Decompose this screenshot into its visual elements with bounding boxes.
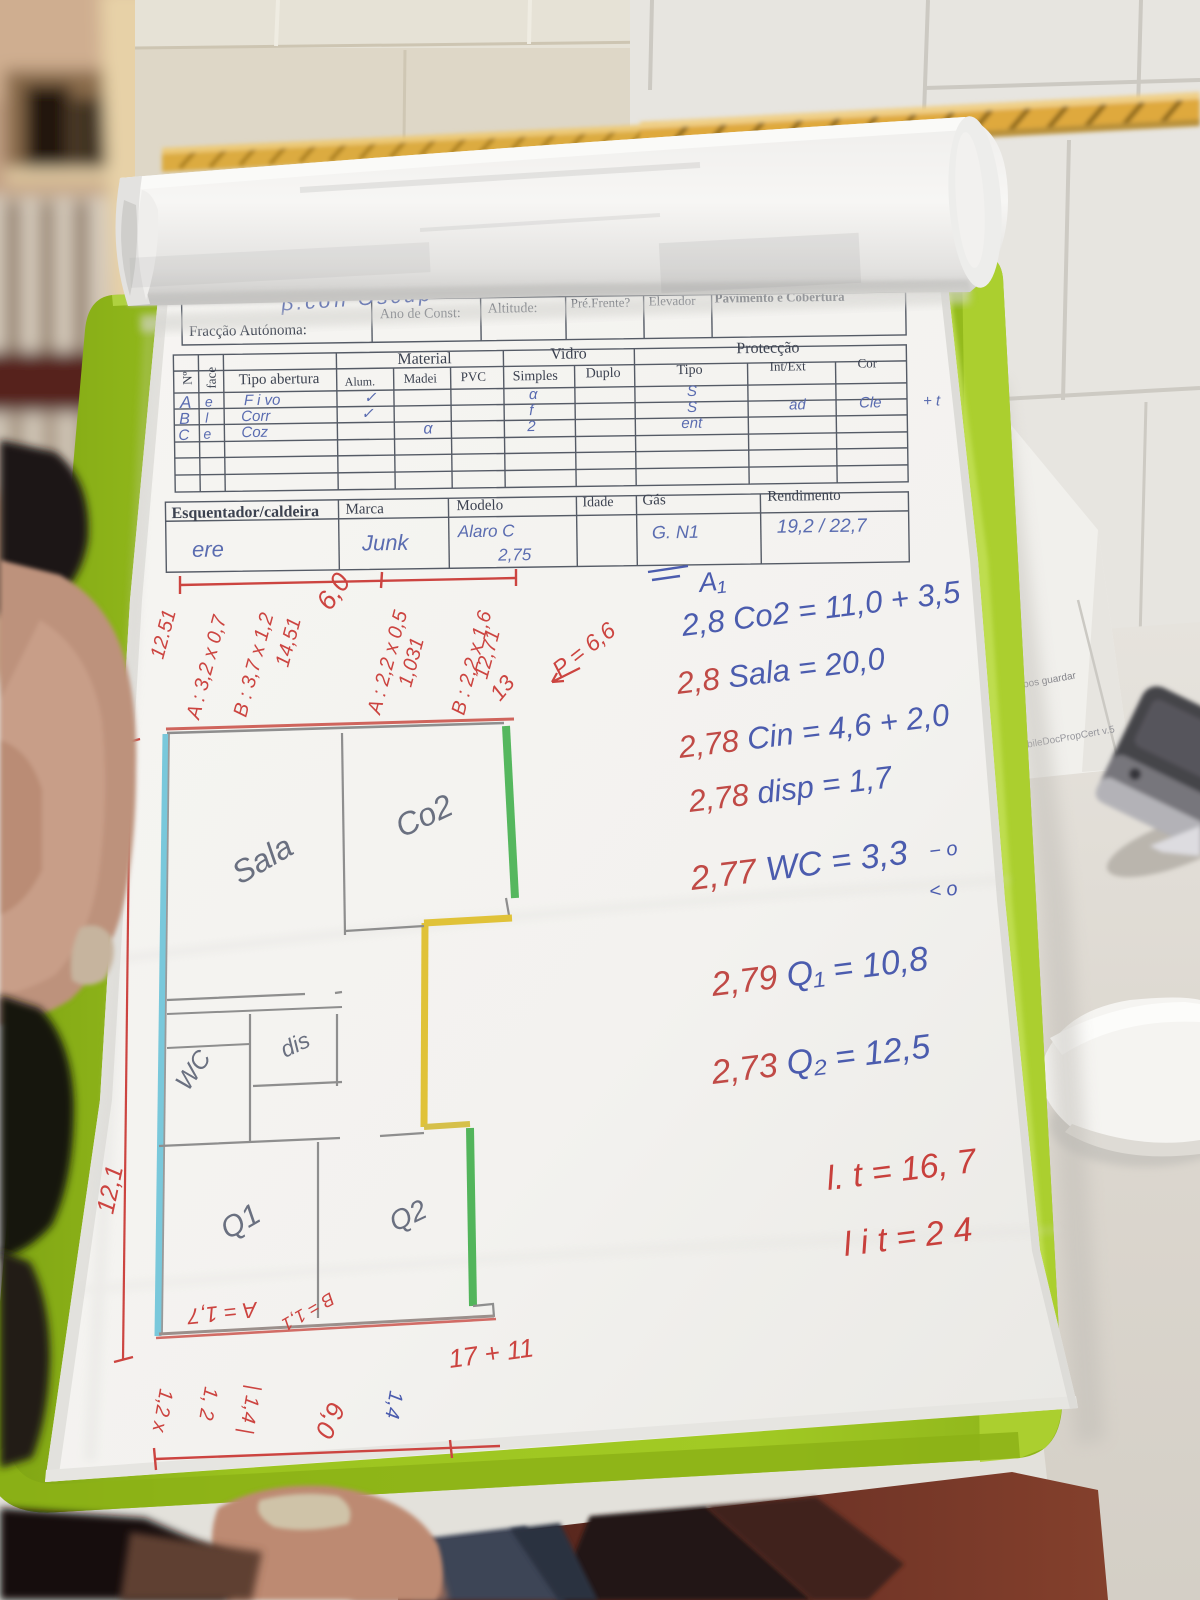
svg-text:A: A xyxy=(179,393,192,412)
svg-text:Alaro C: Alaro C xyxy=(457,521,516,541)
svg-text:Cle: Cle xyxy=(859,394,882,411)
svg-text:PVC: PVC xyxy=(461,369,487,384)
svg-text:Duplo: Duplo xyxy=(586,366,621,381)
svg-text:Int/Ext: Int/Ext xyxy=(769,358,806,374)
svg-text:ent: ent xyxy=(681,415,703,432)
svg-text:Esquentador/caldeira: Esquentador/caldeira xyxy=(171,503,319,522)
svg-text:Tipo: Tipo xyxy=(676,363,702,378)
svg-text:α: α xyxy=(529,386,538,403)
svg-text:Rendimento: Rendimento xyxy=(767,488,841,505)
svg-text:Coz: Coz xyxy=(241,424,268,441)
svg-text:✓: ✓ xyxy=(361,405,374,422)
svg-text:α: α xyxy=(423,420,433,437)
svg-text:G. N1: G. N1 xyxy=(652,522,699,543)
svg-text:Nº: Nº xyxy=(180,371,195,385)
svg-text:2: 2 xyxy=(526,418,536,435)
svg-text:S: S xyxy=(687,383,697,400)
svg-text:+ t: + t xyxy=(923,392,941,409)
svg-text:Idade: Idade xyxy=(582,495,613,510)
svg-text:ad: ad xyxy=(789,396,807,413)
svg-text:B: B xyxy=(179,411,190,428)
svg-text:Modelo: Modelo xyxy=(456,498,503,515)
svg-text:− o: − o xyxy=(928,838,959,863)
svg-text:ere: ere xyxy=(192,536,224,561)
svg-text:Simples: Simples xyxy=(513,369,558,385)
svg-text:Material: Material xyxy=(397,350,452,368)
svg-text:19,2 / 22,7: 19,2 / 22,7 xyxy=(777,515,869,537)
svg-text:A₁: A₁ xyxy=(696,565,728,598)
svg-text:Alum.: Alum. xyxy=(345,374,376,388)
svg-text:Marca: Marca xyxy=(345,501,384,518)
svg-text:Junk: Junk xyxy=(361,530,410,556)
svg-text:face: face xyxy=(204,367,219,389)
svg-text:Madei: Madei xyxy=(404,370,438,385)
svg-text:Corr: Corr xyxy=(241,408,271,425)
svg-text:Protecção: Protecção xyxy=(736,339,799,357)
svg-text:S: S xyxy=(687,399,697,416)
svg-text:Gás: Gás xyxy=(642,492,666,508)
svg-text:F i vo: F i vo xyxy=(244,392,281,410)
svg-text:Tipo abertura: Tipo abertura xyxy=(239,371,320,388)
svg-text:Vidro: Vidro xyxy=(550,345,587,363)
svg-text:✓: ✓ xyxy=(364,389,377,406)
svg-text:< o: < o xyxy=(928,878,959,903)
svg-text:e: e xyxy=(205,394,213,410)
svg-text:Cor: Cor xyxy=(857,355,877,370)
svg-text:2,75: 2,75 xyxy=(497,545,532,564)
svg-text:e: e xyxy=(203,426,211,442)
svg-text:C: C xyxy=(178,427,189,444)
